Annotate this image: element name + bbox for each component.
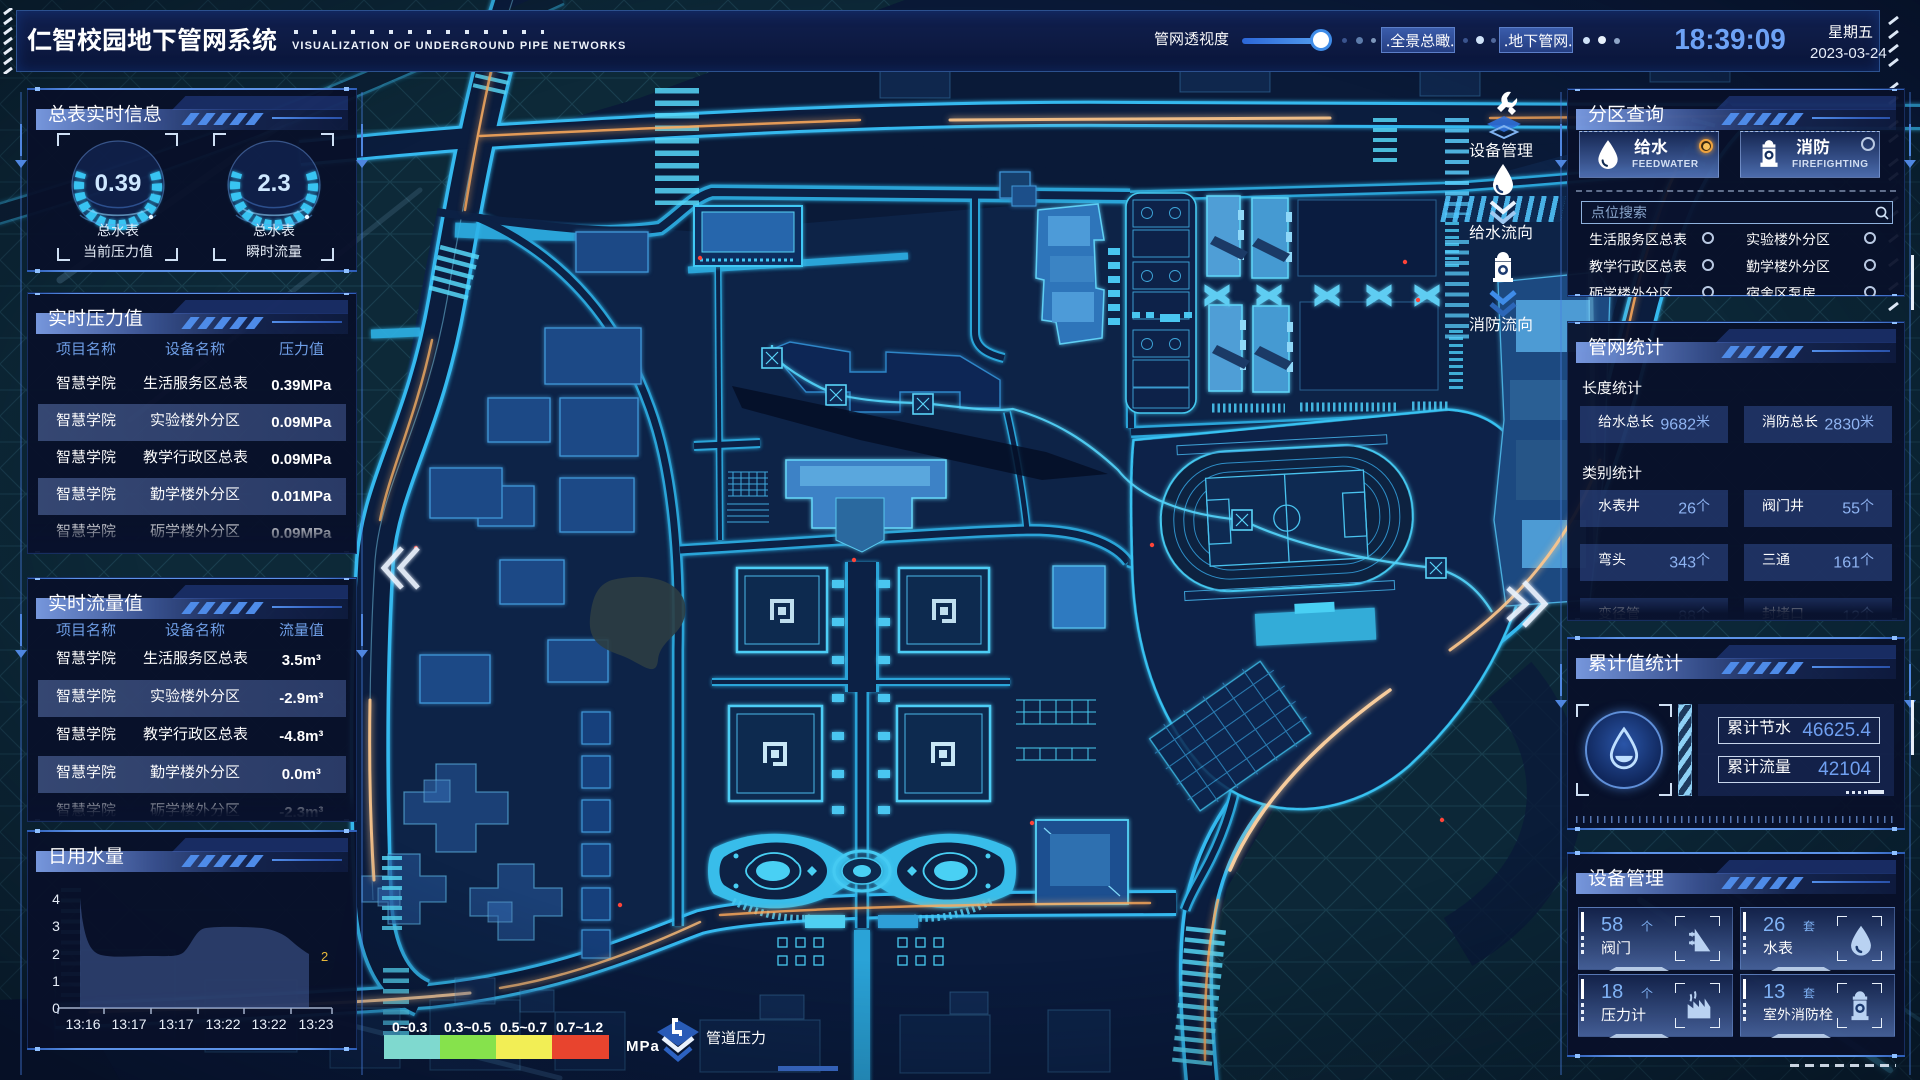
svg-text:2: 2 <box>52 946 60 962</box>
svg-text:2: 2 <box>321 949 328 964</box>
svg-text:1: 1 <box>52 973 60 989</box>
svg-text:13:22: 13:22 <box>205 1016 240 1032</box>
svg-text:2.3: 2.3 <box>257 170 290 197</box>
svg-text:13:23: 13:23 <box>298 1016 333 1032</box>
svg-text:3: 3 <box>52 918 60 934</box>
svg-text:13:17: 13:17 <box>111 1016 146 1032</box>
svg-text:13:17: 13:17 <box>158 1016 193 1032</box>
svg-text:0.39: 0.39 <box>95 170 142 197</box>
svg-text:13:22: 13:22 <box>251 1016 286 1032</box>
svg-text:13:16: 13:16 <box>65 1016 100 1032</box>
svg-text:4: 4 <box>52 891 60 907</box>
